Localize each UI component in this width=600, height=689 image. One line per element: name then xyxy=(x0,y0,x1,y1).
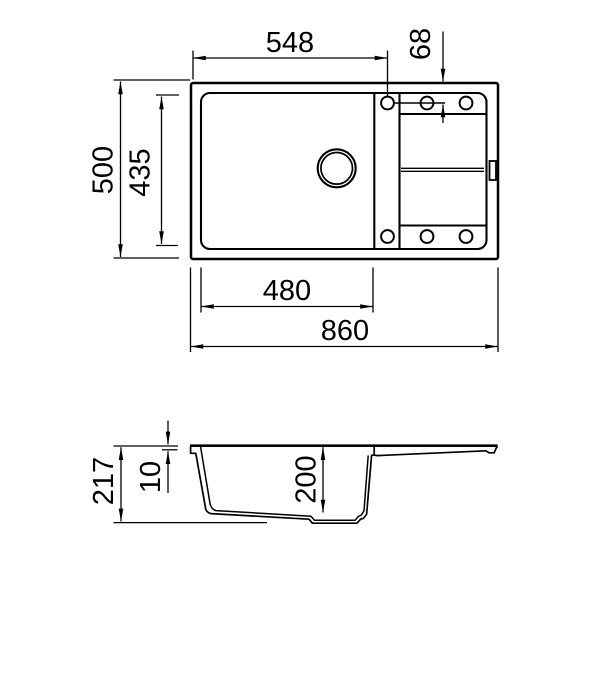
dim-200: 200 xyxy=(291,447,324,512)
drain-outer-circle xyxy=(318,149,356,187)
dim-217-label: 217 xyxy=(88,457,120,505)
dim-500-label: 500 xyxy=(88,146,120,194)
dim-548-label: 548 xyxy=(266,27,314,59)
dim-860: 860 xyxy=(191,268,499,353)
drawing-svg: 548 68 500 435 480 xyxy=(0,0,600,689)
dim-217: 217 xyxy=(88,446,267,523)
dim-860-label: 860 xyxy=(321,315,369,347)
overflow-slot xyxy=(490,161,497,180)
bowl-inner-profile xyxy=(201,447,369,520)
tap-hole-4 xyxy=(381,230,394,243)
dim-200-label: 200 xyxy=(291,455,323,503)
dim-435-label: 435 xyxy=(125,148,157,196)
top-view: 548 68 500 435 480 xyxy=(88,27,499,352)
dim-480: 480 xyxy=(201,268,373,313)
dim-68-label: 68 xyxy=(405,28,437,60)
tap-hole-1 xyxy=(381,97,394,110)
dim-480-label: 480 xyxy=(263,275,311,307)
drain-inner-circle xyxy=(321,153,353,185)
sink-technical-drawing: 548 68 500 435 480 xyxy=(0,0,600,689)
tap-hole-5 xyxy=(421,230,434,243)
bowl-outer-profile xyxy=(191,446,375,524)
dim-435: 435 xyxy=(125,95,180,246)
dim-548: 548 xyxy=(193,27,388,96)
dim-10: 10 xyxy=(135,421,178,494)
drainer-underside-profile xyxy=(374,446,497,455)
dim-10-label: 10 xyxy=(135,461,167,493)
tap-hole-6 xyxy=(460,230,473,243)
side-view: 217 10 200 xyxy=(88,421,498,524)
tap-hole-3 xyxy=(460,97,473,110)
